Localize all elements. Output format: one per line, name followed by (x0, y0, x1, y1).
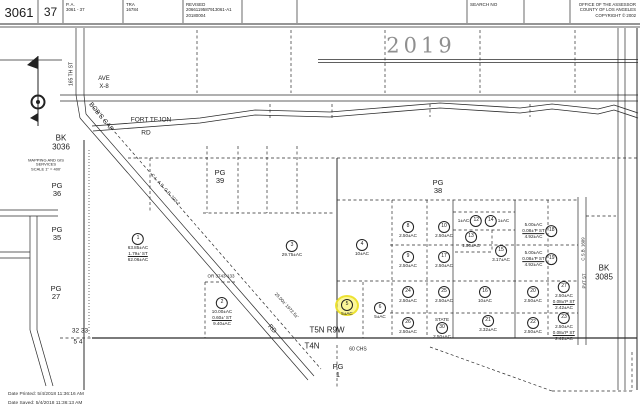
parcel-1[interactable]: 163.85±AC1.79±' ST62.06±AC (128, 233, 148, 263)
tra-value: 16784 (126, 7, 183, 12)
parcel-3-acreage: 29.75±AC (282, 252, 302, 258)
date-printed: Date Printed: 5/4/2018 11:36:16 AM (8, 392, 84, 397)
parcel-14[interactable]: 141±AC (485, 215, 509, 227)
label-ave: AVE (98, 76, 110, 82)
parcel-2[interactable]: 210.00±AC0.60±' ST9.40±AC (212, 297, 232, 327)
parcel-25[interactable]: 252.50±AC (435, 286, 453, 304)
parcel-6-number: 6 (374, 302, 386, 314)
label-bk-3085: BK 3085 (595, 264, 613, 281)
parcel-3[interactable]: 329.75±AC (282, 240, 302, 258)
parcel-8[interactable]: 82.50±AC (399, 221, 417, 239)
parcel-17-acreage: 2.50±AC (435, 263, 453, 269)
parcel-map-canvas: 2019AVEX-8FORT TEJONRDBOB'S GAPRD165 TH … (0, 0, 640, 414)
office-line-2: COUNTY OF LOS ANGELES (570, 7, 636, 12)
parcel-5-number: 5 (341, 299, 353, 311)
tra-cell: TRA 16784 (123, 0, 183, 23)
parcel-10[interactable]: 102.50±AC (435, 221, 453, 239)
parcel-15-number: 15 (495, 245, 507, 257)
north-arrow-icon (18, 52, 58, 130)
parcel-9-number: 9 (402, 251, 414, 263)
parcel-23-acreage: 2.50±AC0.08±'P ST2.42±AC (553, 324, 575, 342)
parcel-5[interactable]: 55±AC (341, 299, 353, 317)
parcel-18-acreage: 5.00±AC0.08±'P ST4.92±AC (522, 222, 544, 240)
parcel-8-acreage: 2.50±AC (399, 233, 417, 239)
parcel-20[interactable]: 202.50±AC (524, 286, 542, 304)
parcel-27[interactable]: 272.50±AC0.08±'P ST2.42±AC (553, 281, 575, 311)
revised-value-2: 20180004 (186, 13, 242, 18)
parcel-6-acreage: 5±AC (374, 314, 385, 320)
label-pg-38: PG 38 (433, 179, 444, 195)
parcel-24-number: 24 (402, 286, 414, 298)
parcel-13-acreage: 1.50±AC (462, 243, 480, 249)
parcel-16-acreage: 10±AC (478, 298, 492, 304)
parcel-15[interactable]: 153.17±AC (492, 245, 510, 263)
parcel-4-acreage: 10±AC (355, 251, 369, 257)
parcel-30-number: 30 (436, 322, 448, 334)
parcel-25-acreage: 2.50±AC (435, 298, 453, 304)
map-linework (0, 0, 640, 414)
parcel-20-acreage: 2.50±AC (524, 298, 542, 304)
parcel-18-number: 18 (546, 225, 558, 237)
parcel-27-acreage: 2.50±AC0.08±'P ST2.42±AC (553, 293, 575, 311)
office-line-3: COPYRIGHT © 2002 (570, 13, 636, 18)
label-csb-1609: C.S.B. 1609 (582, 237, 587, 260)
parcel-13[interactable]: 131.50±AC (462, 231, 480, 249)
parcel-26[interactable]: 262.50±AC (399, 317, 417, 335)
parcel-22[interactable]: 222.50±AC (524, 317, 542, 335)
parcel-19-acreage: 5.00±AC0.08±'P ST4.92±AC (522, 250, 544, 268)
parcel-1-number: 1 (132, 233, 144, 245)
label-sec-32-33: 32 33 (72, 327, 88, 334)
parcel-21-number: 21 (482, 315, 494, 327)
parcel-2-number: 2 (216, 297, 228, 309)
parcel-22-acreage: 2.50±AC (524, 329, 542, 335)
label-pg-36: PG 36 (52, 182, 63, 198)
parcel-2-acreage: 10.00±AC0.60±' ST9.40±AC (212, 309, 232, 327)
parcel-17[interactable]: 172.50±AC (435, 251, 453, 269)
parcel-19[interactable]: 5.00±AC0.08±'P ST4.92±AC19 (522, 250, 557, 268)
parcel-8-number: 8 (402, 221, 414, 233)
label-fort-tejon: FORT TEJON (131, 116, 171, 123)
parcel-23-number: 23 (558, 312, 570, 324)
label-year: 2019 (386, 35, 455, 58)
label-pvt-st: PVT ST (583, 274, 588, 289)
label-ave-x8: X-8 (99, 84, 108, 90)
label-fort-tejon-rd: RD (141, 129, 150, 136)
parcel-16[interactable]: 1610±AC (478, 286, 492, 304)
date-saved: Date Saved: 5/4/2018 11:36:13 AM (8, 401, 82, 406)
label-pg-35: PG 35 (52, 226, 63, 242)
label-pg-1: PG 1 (333, 363, 344, 379)
parcel-5-acreage: 5±AC (341, 311, 352, 317)
parcel-16-number: 16 (479, 286, 491, 298)
parcel-26-number: 26 (402, 317, 414, 329)
parcel-21[interactable]: 213.32±AC (479, 315, 497, 333)
parcel-25-number: 25 (438, 286, 450, 298)
parcel-21-acreage: 3.32±AC (479, 327, 497, 333)
parcel-9[interactable]: 92.50±AC (399, 251, 417, 269)
label-or-ref: OR 3743-133 (207, 275, 234, 280)
label-sec-5-4: 5 4 (73, 338, 82, 345)
book-number: 3061 (0, 0, 38, 23)
parcel-4[interactable]: 410±AC (355, 239, 369, 257)
parcel-26-acreage: 2.50±AC (399, 329, 417, 335)
parcel-30-acreage: 2.50±AC (433, 334, 451, 340)
label-pg-27: PG 27 (51, 285, 62, 301)
search-no-cell: SEARCH NO (467, 0, 524, 23)
pa-value: 3061 - 37 (66, 7, 123, 12)
label-chs-60: 60 CHS (349, 347, 367, 352)
parcel-19-number: 19 (546, 253, 558, 265)
parcel-24[interactable]: 242.50±AC (399, 286, 417, 304)
parcel-12-acreage: 1±AC (458, 218, 469, 224)
parcel-12-number: 12 (470, 215, 482, 227)
parcel-20-number: 20 (527, 286, 539, 298)
label-t4n: T4N (304, 343, 319, 352)
parcel-14-number: 14 (485, 215, 497, 227)
parcel-13-number: 13 (465, 231, 477, 243)
search-no-label: SEARCH NO (470, 2, 497, 7)
parcel-27-number: 27 (558, 281, 570, 293)
label-bk-3036: BK 3036 (52, 134, 70, 151)
page-number: 37 (38, 0, 63, 23)
parcel-3-number: 3 (286, 240, 298, 252)
parcel-9-acreage: 2.50±AC (399, 263, 417, 269)
pa-cell: P. A. 3061 - 37 (63, 0, 123, 23)
parcel-15-acreage: 3.17±AC (492, 257, 510, 263)
parcel-10-acreage: 2.50±AC (435, 233, 453, 239)
parcel-10-number: 10 (438, 221, 450, 233)
revised-cell: REVISED 2066119587913061-A1 20180004 (183, 0, 242, 23)
parcel-4-number: 4 (356, 239, 368, 251)
parcel-1-acreage: 63.85±AC1.79±' ST62.06±AC (128, 245, 148, 263)
parcel-30[interactable]: STATE302.50±AC (433, 317, 451, 340)
parcel-6[interactable]: 65±AC (374, 302, 386, 320)
parcel-17-number: 17 (438, 251, 450, 263)
parcel-24-acreage: 2.50±AC (399, 298, 417, 304)
label-pg-39: PG 39 (215, 169, 226, 185)
parcel-18[interactable]: 5.00±AC0.08±'P ST4.92±AC18 (522, 222, 557, 240)
label-t5n-r9w: T5N R9W (309, 327, 344, 336)
label-st-165th: 165 TH ST (69, 62, 74, 86)
assessor-office-cell: OFFICE OF THE ASSESSOR COUNTY OF LOS ANG… (570, 0, 638, 23)
parcel-23[interactable]: 232.50±AC0.08±'P ST2.42±AC (553, 312, 575, 342)
parcel-12[interactable]: 1±AC12 (458, 215, 482, 227)
label-mapping-note: MAPPING AND GIS SERVICES SCALE 1" = 400' (28, 159, 64, 172)
parcel-14-acreage: 1±AC (498, 218, 509, 224)
assessor-map-page: 3061 37 P. A. 3061 - 37 TRA 16784 REVISE… (0, 0, 640, 414)
parcel-22-number: 22 (527, 317, 539, 329)
